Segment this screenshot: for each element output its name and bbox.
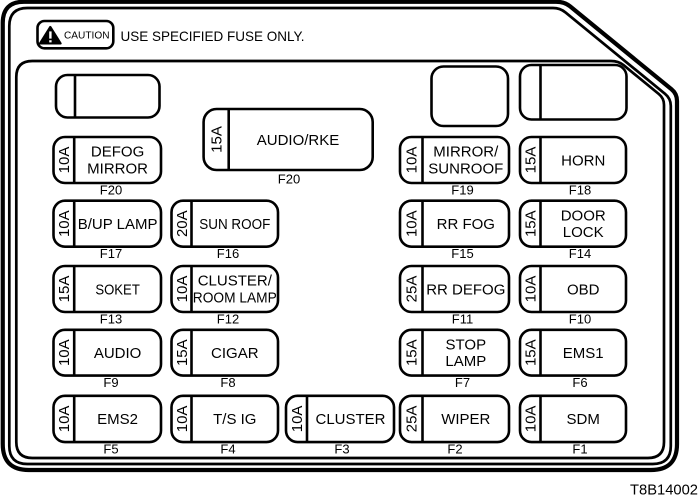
svg-text:25A: 25A xyxy=(404,276,421,303)
svg-text:DOOR: DOOR xyxy=(561,207,606,224)
svg-text:15A: 15A xyxy=(56,276,73,303)
svg-text:F8: F8 xyxy=(220,375,235,390)
svg-text:F2: F2 xyxy=(447,442,462,457)
svg-text:F17: F17 xyxy=(100,246,122,261)
svg-text:SUNROOF: SUNROOF xyxy=(428,160,503,177)
svg-text:F14: F14 xyxy=(569,246,591,261)
svg-text:10A: 10A xyxy=(56,406,73,433)
svg-text:10A: 10A xyxy=(289,406,306,433)
svg-text:F4: F4 xyxy=(220,442,235,457)
svg-text:T/S IG: T/S IG xyxy=(213,411,256,428)
svg-text:F15: F15 xyxy=(451,246,473,261)
svg-text:RR DEFOG: RR DEFOG xyxy=(426,281,505,298)
svg-text:AUDIO: AUDIO xyxy=(94,345,142,362)
svg-text:DEFOG: DEFOG xyxy=(91,144,144,161)
svg-text:CLUSTER: CLUSTER xyxy=(315,411,385,428)
svg-text:10A: 10A xyxy=(404,147,421,174)
svg-text:15A: 15A xyxy=(404,339,421,366)
svg-text:F19: F19 xyxy=(451,183,473,198)
svg-text:10A: 10A xyxy=(56,147,73,174)
svg-text:F18: F18 xyxy=(569,183,591,198)
svg-text:LAMP: LAMP xyxy=(445,353,486,370)
svg-text:MIRROR: MIRROR xyxy=(87,160,148,177)
svg-text:10A: 10A xyxy=(174,406,191,433)
svg-text:15A: 15A xyxy=(523,147,540,174)
svg-text:F10: F10 xyxy=(569,312,591,327)
svg-text:EMS1: EMS1 xyxy=(563,345,604,362)
svg-text:F9: F9 xyxy=(103,375,118,390)
svg-text:F16: F16 xyxy=(217,246,239,261)
svg-text:CIGAR: CIGAR xyxy=(211,345,259,362)
svg-text:SDM: SDM xyxy=(567,411,600,428)
svg-text:10A: 10A xyxy=(523,276,540,303)
svg-text:USE SPECIFIED FUSE ONLY.: USE SPECIFIED FUSE ONLY. xyxy=(121,29,305,44)
svg-text:STOP: STOP xyxy=(446,336,487,353)
svg-text:10A: 10A xyxy=(174,276,191,303)
svg-text:F3: F3 xyxy=(334,442,349,457)
svg-text:10A: 10A xyxy=(404,210,421,237)
svg-text:10A: 10A xyxy=(56,210,73,237)
svg-text:CAUTION: CAUTION xyxy=(64,31,110,42)
svg-text:25A: 25A xyxy=(404,406,421,433)
svg-text:15A: 15A xyxy=(523,339,540,366)
svg-text:OBD: OBD xyxy=(567,281,600,298)
svg-text:10A: 10A xyxy=(56,339,73,366)
svg-text:20A: 20A xyxy=(174,210,191,237)
svg-text:F1: F1 xyxy=(572,442,587,457)
svg-text:F13: F13 xyxy=(100,312,122,327)
svg-text:ROOM LAMP: ROOM LAMP xyxy=(193,289,277,306)
svg-text:WIPER: WIPER xyxy=(441,411,490,428)
svg-text:B/UP LAMP: B/UP LAMP xyxy=(78,216,158,233)
svg-text:F6: F6 xyxy=(572,375,587,390)
svg-text:LOCK: LOCK xyxy=(563,224,604,241)
svg-text:10A: 10A xyxy=(523,406,540,433)
svg-text:EMS2: EMS2 xyxy=(97,411,138,428)
svg-text:F7: F7 xyxy=(455,375,470,390)
svg-text:HORN: HORN xyxy=(561,152,605,169)
svg-text:15A: 15A xyxy=(174,339,191,366)
svg-text:F5: F5 xyxy=(103,442,118,457)
svg-text:RR FOG: RR FOG xyxy=(437,216,495,233)
svg-text:F20: F20 xyxy=(100,183,122,198)
svg-text:SOKET: SOKET xyxy=(95,281,140,298)
svg-text:CLUSTER/: CLUSTER/ xyxy=(198,273,273,290)
svg-text:F20: F20 xyxy=(278,172,300,187)
svg-text:SUN ROOF: SUN ROOF xyxy=(199,216,270,233)
svg-text:F12: F12 xyxy=(217,312,239,327)
svg-text:15A: 15A xyxy=(209,126,226,153)
svg-text:T8B14002: T8B14002 xyxy=(630,482,698,497)
svg-text:F11: F11 xyxy=(452,312,473,327)
svg-text:15A: 15A xyxy=(523,210,540,237)
svg-text:AUDIO/RKE: AUDIO/RKE xyxy=(257,132,340,149)
svg-text:MIRROR/: MIRROR/ xyxy=(433,144,499,161)
